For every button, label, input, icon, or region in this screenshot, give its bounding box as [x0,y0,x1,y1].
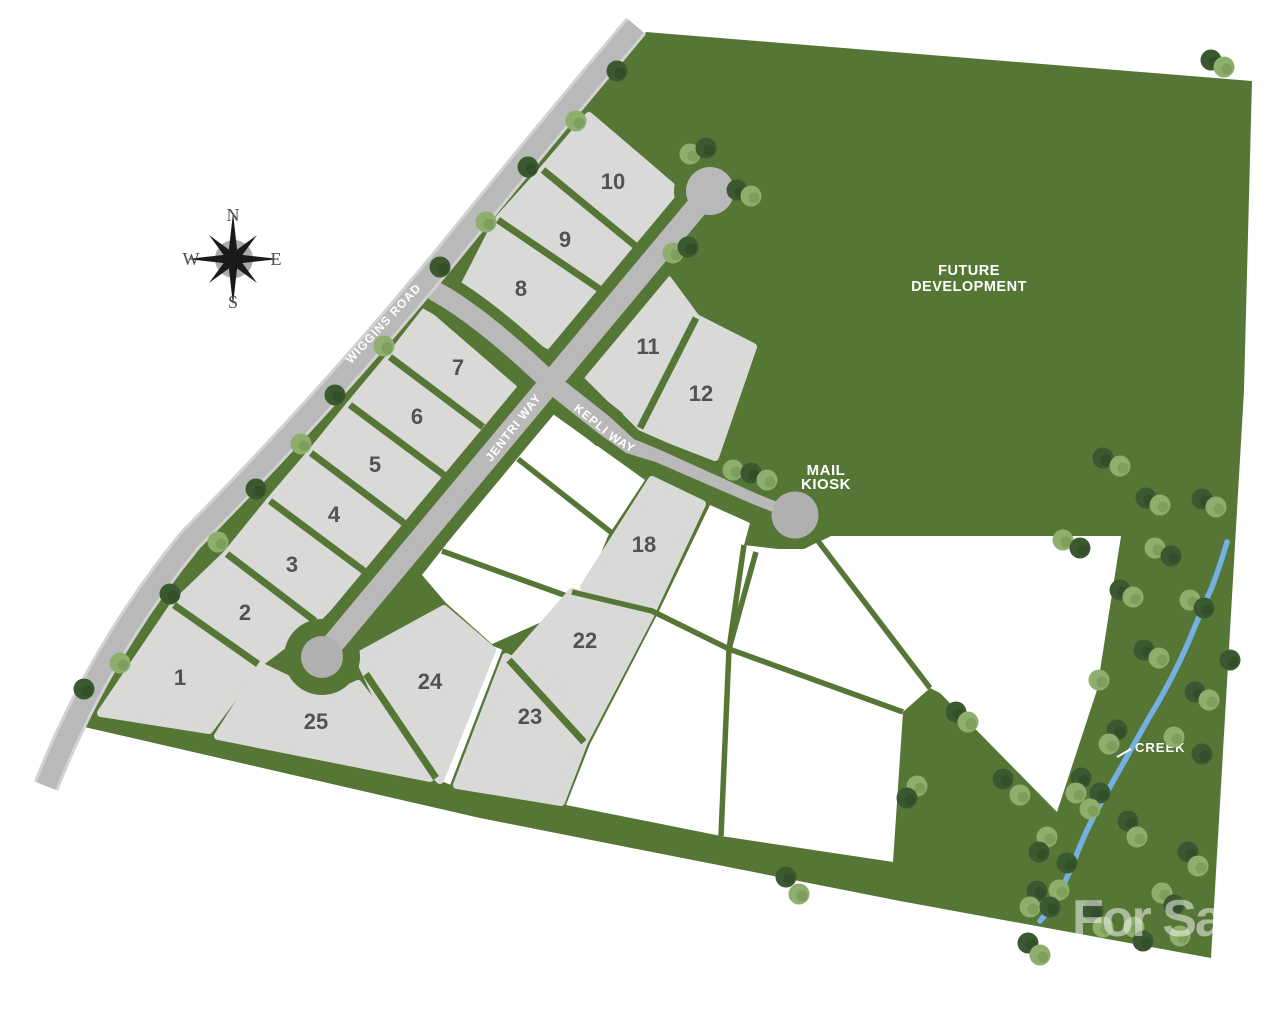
svg-text:W: W [183,249,200,269]
svg-text:25: 25 [304,709,328,734]
svg-text:22: 22 [573,628,597,653]
svg-text:6: 6 [411,404,423,429]
svg-text:7: 7 [452,355,464,380]
svg-text:S: S [228,292,238,312]
svg-text:2: 2 [239,600,251,625]
svg-text:8: 8 [515,276,527,301]
svg-text:12: 12 [689,381,713,406]
svg-text:10: 10 [601,169,625,194]
svg-text:4: 4 [328,502,341,527]
svg-text:5: 5 [369,452,381,477]
svg-text:E: E [271,249,282,269]
svg-text:3: 3 [286,552,298,577]
svg-text:FUTURE: FUTURE [938,263,1000,279]
svg-text:KIOSK: KIOSK [801,476,851,493]
svg-text:11: 11 [636,334,659,359]
svg-text:18: 18 [632,532,656,557]
svg-text:23: 23 [518,704,542,729]
svg-text:9: 9 [559,227,571,252]
svg-text:24: 24 [418,669,443,694]
svg-text:DEVELOPMENT: DEVELOPMENT [911,279,1027,295]
svg-text:1: 1 [174,665,186,690]
svg-text:For Sale: For Sale [1072,890,1262,948]
svg-text:N: N [227,205,240,225]
